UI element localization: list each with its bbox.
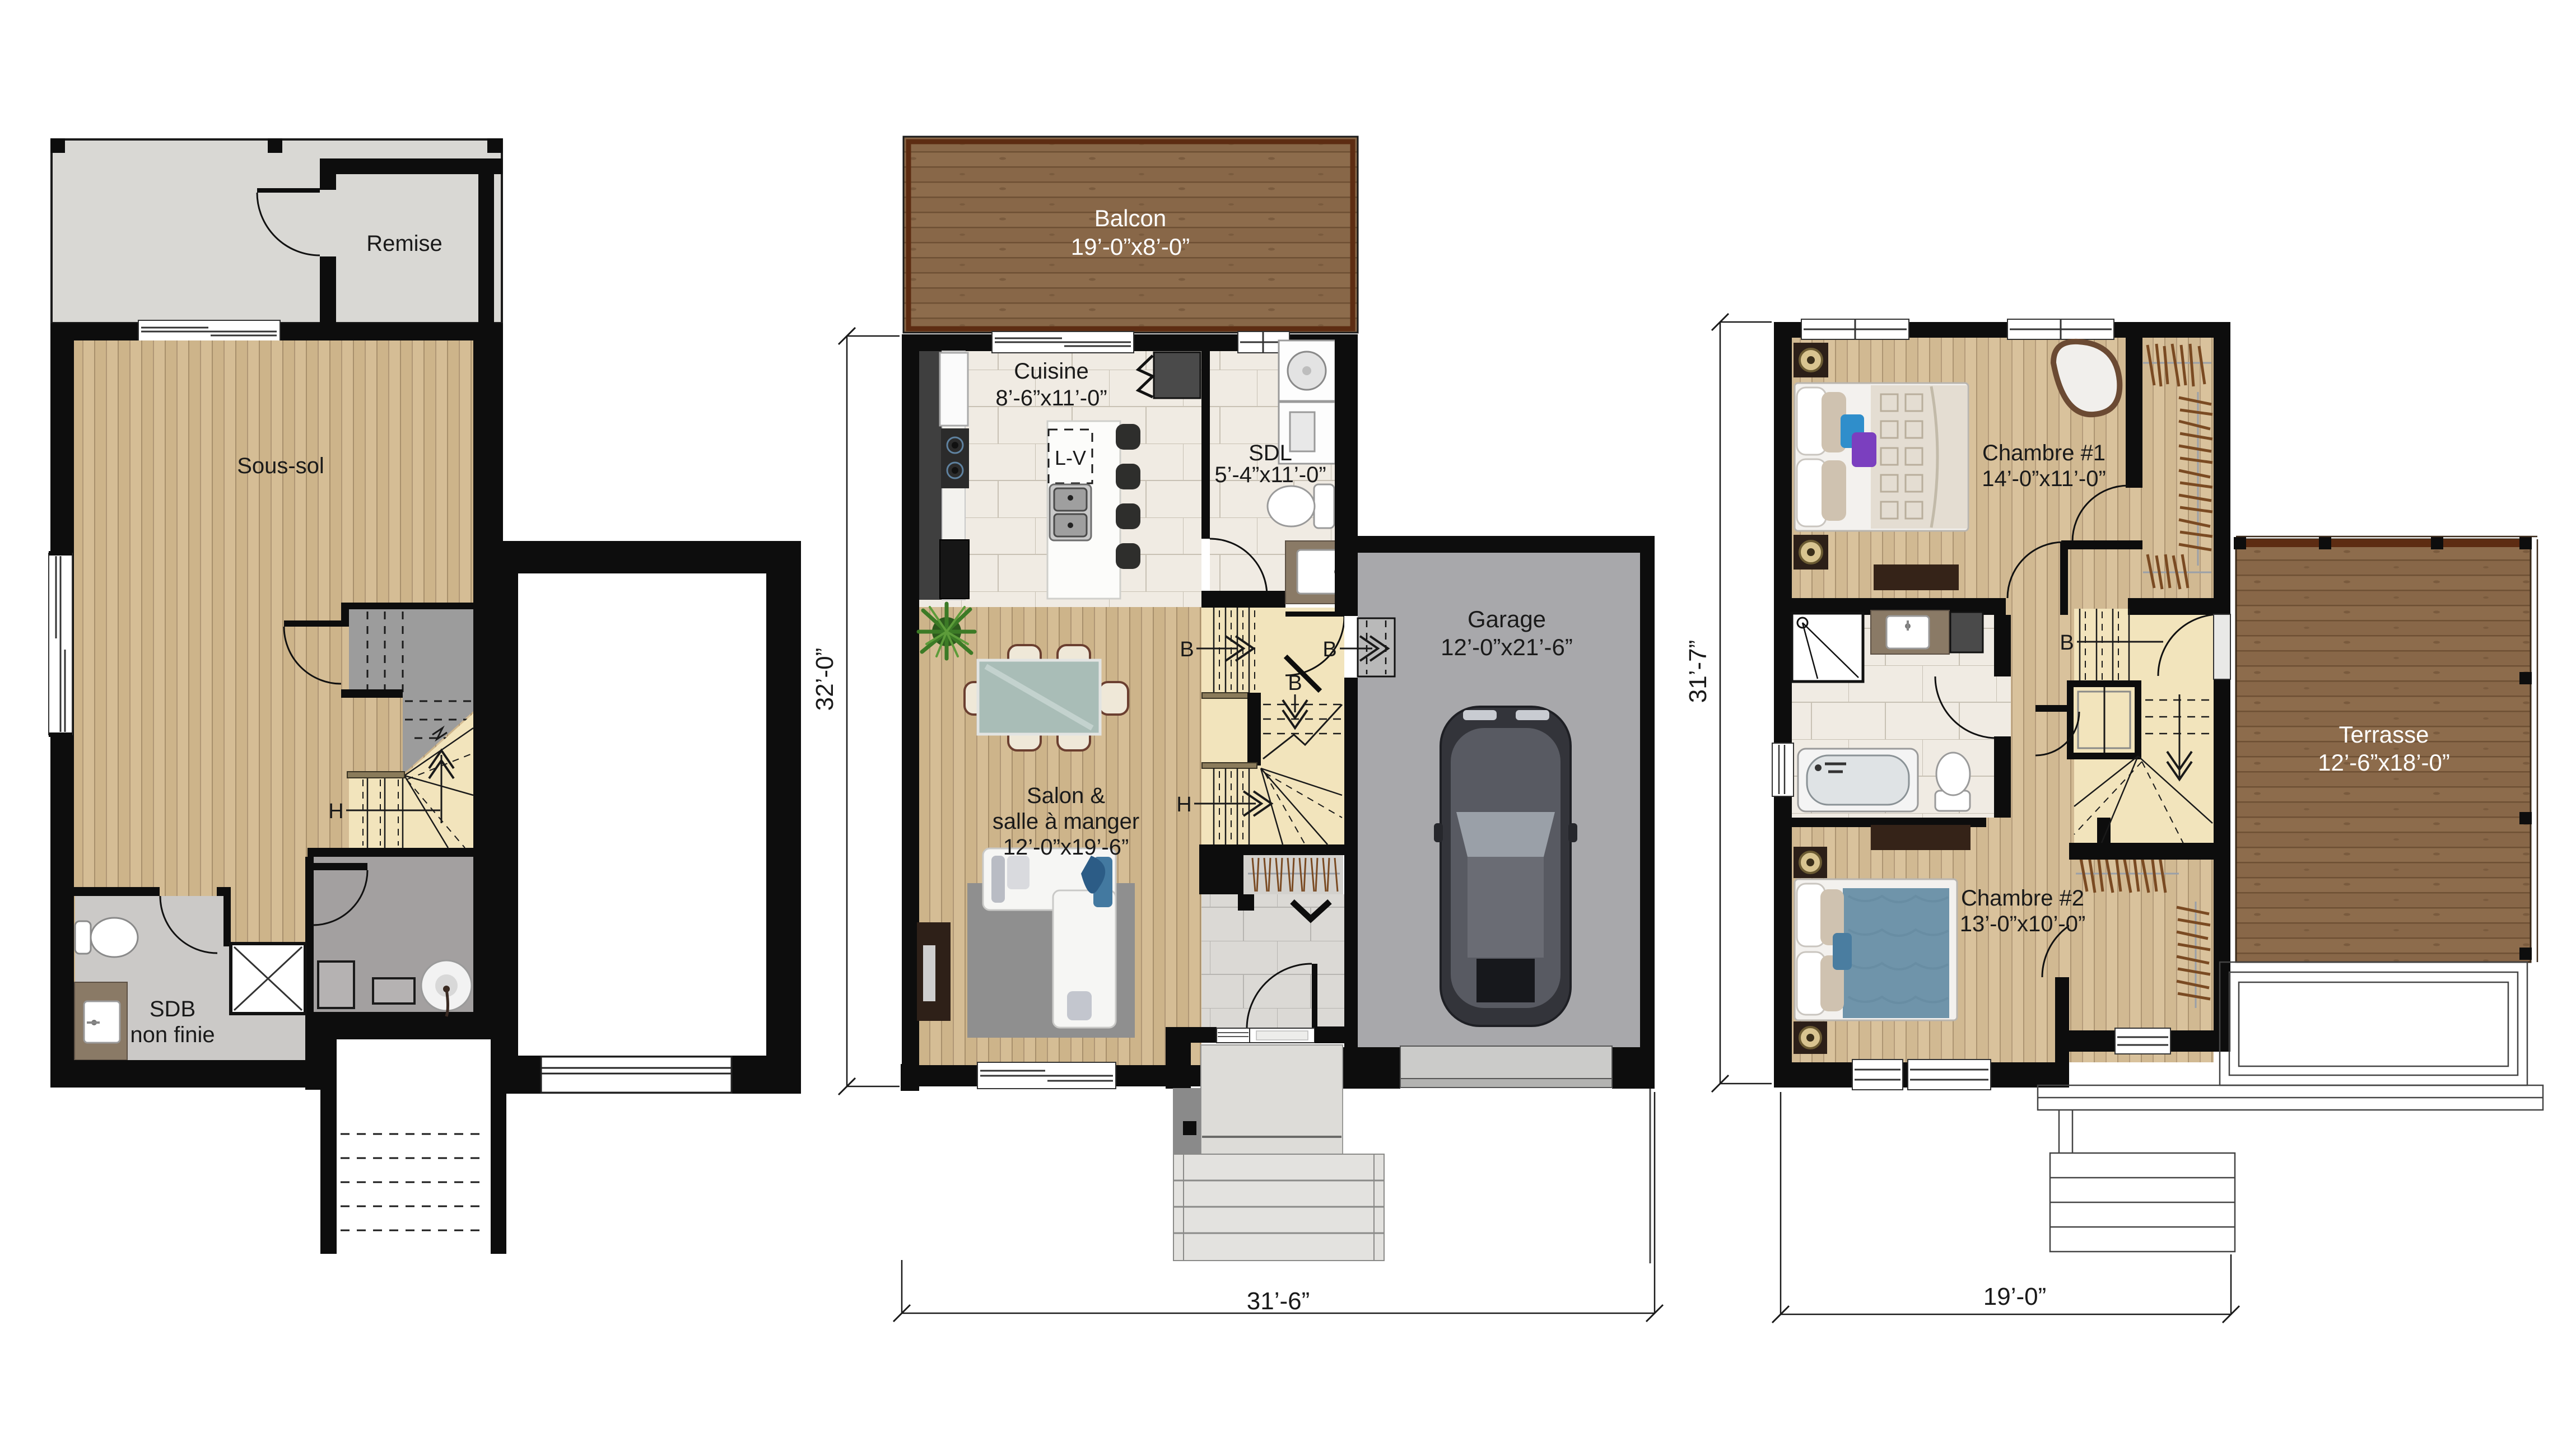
- svg-text:Cuisine: Cuisine: [1014, 359, 1088, 384]
- svg-text:14’-0”x11’-0”: 14’-0”x11’-0”: [1982, 466, 2106, 491]
- svg-text:B: B: [1180, 638, 1194, 661]
- svg-text:salle à manger: salle à manger: [993, 809, 1139, 834]
- svg-text:12’-0”x21’-6”: 12’-0”x21’-6”: [1441, 634, 1573, 660]
- svg-text:Chambre #2: Chambre #2: [1961, 886, 2084, 911]
- svg-text:B: B: [1288, 671, 1302, 695]
- svg-text:19’-0”: 19’-0”: [1983, 1283, 2047, 1310]
- svg-text:B: B: [1322, 638, 1336, 661]
- svg-text:8’-6”x11’-0”: 8’-6”x11’-0”: [995, 386, 1107, 410]
- svg-text:SDB: SDB: [150, 997, 195, 1021]
- svg-text:H: H: [1176, 793, 1191, 816]
- svg-text:Remise: Remise: [366, 231, 442, 256]
- svg-text:B: B: [2060, 631, 2074, 655]
- svg-text:32’-0”: 32’-0”: [811, 648, 839, 711]
- svg-text:Salon &: Salon &: [1027, 783, 1105, 808]
- svg-text:H: H: [328, 800, 343, 823]
- svg-text:Garage: Garage: [1468, 606, 1546, 632]
- svg-text:12’-6”x18’-0”: 12’-6”x18’-0”: [2318, 749, 2450, 776]
- svg-text:31’-7”: 31’-7”: [1684, 640, 1712, 703]
- svg-text:12’-0”x19’-6”: 12’-0”x19’-6”: [1003, 835, 1129, 860]
- svg-text:non finie: non finie: [130, 1023, 215, 1047]
- svg-text:Terrasse: Terrasse: [2339, 721, 2429, 748]
- svg-text:13’-0”x10’-0”: 13’-0”x10’-0”: [1960, 912, 2086, 936]
- svg-text:5’-4”x11’-0”: 5’-4”x11’-0”: [1214, 463, 1326, 487]
- svg-text:19’-0”x8’-0”: 19’-0”x8’-0”: [1071, 234, 1190, 260]
- svg-text:Balcon: Balcon: [1094, 205, 1166, 231]
- svg-text:SDL: SDL: [1249, 441, 1292, 465]
- svg-text:31’-6”: 31’-6”: [1247, 1287, 1310, 1315]
- svg-text:Sous-sol: Sous-sol: [237, 454, 324, 478]
- svg-text:L-V: L-V: [1055, 446, 1086, 469]
- svg-text:Chambre #1: Chambre #1: [1982, 441, 2106, 465]
